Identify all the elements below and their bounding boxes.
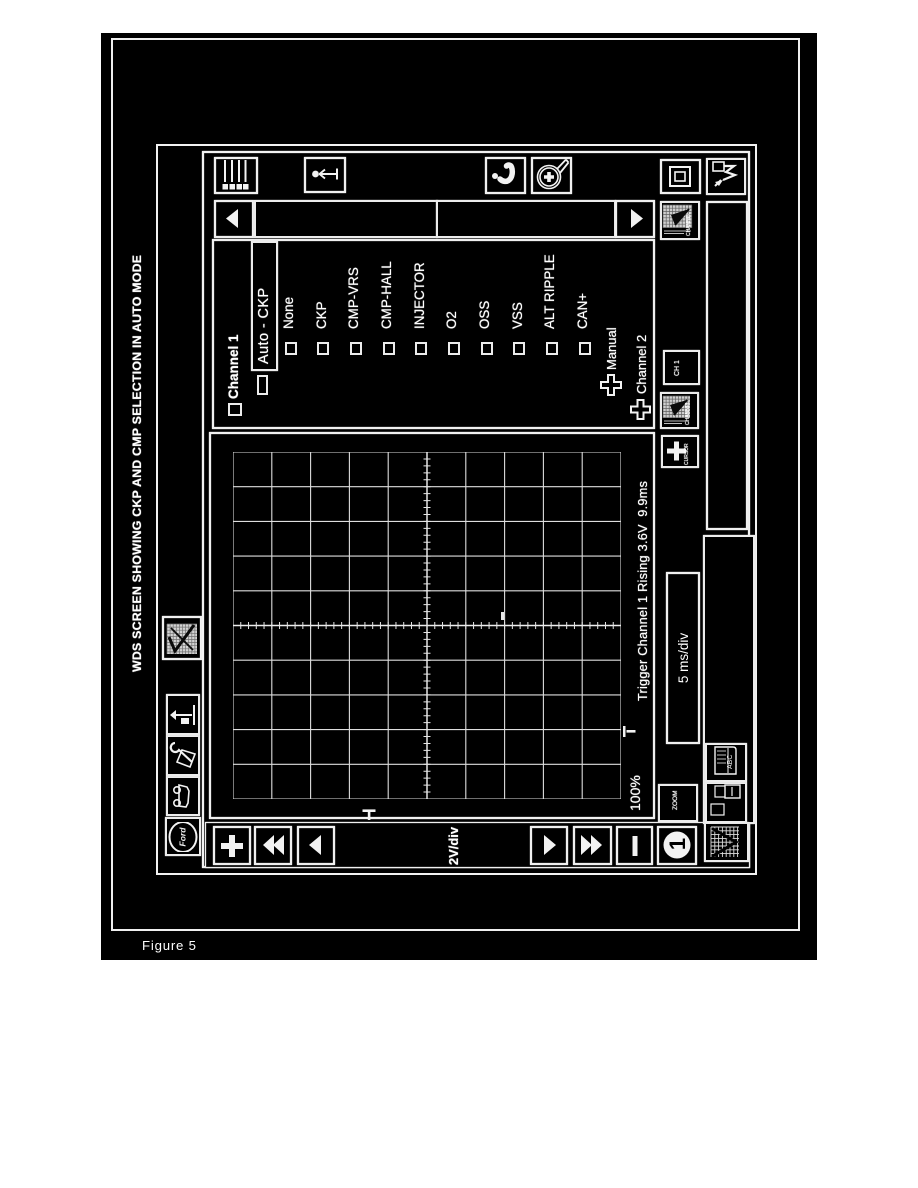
svg-text:ABC: ABC (727, 755, 734, 769)
svg-text:Ford: Ford (177, 827, 187, 847)
svg-text:1: 1 (665, 838, 690, 850)
